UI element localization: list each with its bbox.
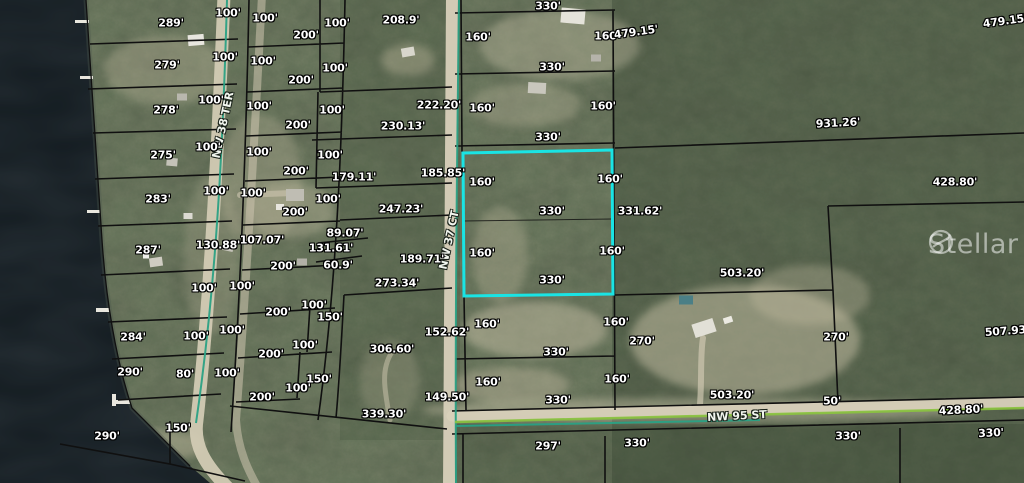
house xyxy=(166,158,178,167)
aerial-base xyxy=(0,0,1024,483)
house xyxy=(184,213,193,219)
house xyxy=(297,259,307,266)
driveway-mid xyxy=(240,193,292,195)
house xyxy=(591,55,601,62)
house xyxy=(528,82,547,94)
house xyxy=(143,254,149,259)
house xyxy=(286,189,304,201)
pool xyxy=(679,296,693,305)
dock xyxy=(114,400,130,404)
dock xyxy=(87,210,100,213)
dock xyxy=(112,394,116,406)
parcel-map-image: 289'100'100'100'200'208.9'330'160'160'47… xyxy=(0,0,1024,483)
house xyxy=(149,257,163,268)
house xyxy=(177,94,187,101)
forest-dark-south xyxy=(455,424,1024,483)
house xyxy=(276,204,284,210)
dock xyxy=(96,308,110,312)
driveway-ne xyxy=(700,338,703,404)
